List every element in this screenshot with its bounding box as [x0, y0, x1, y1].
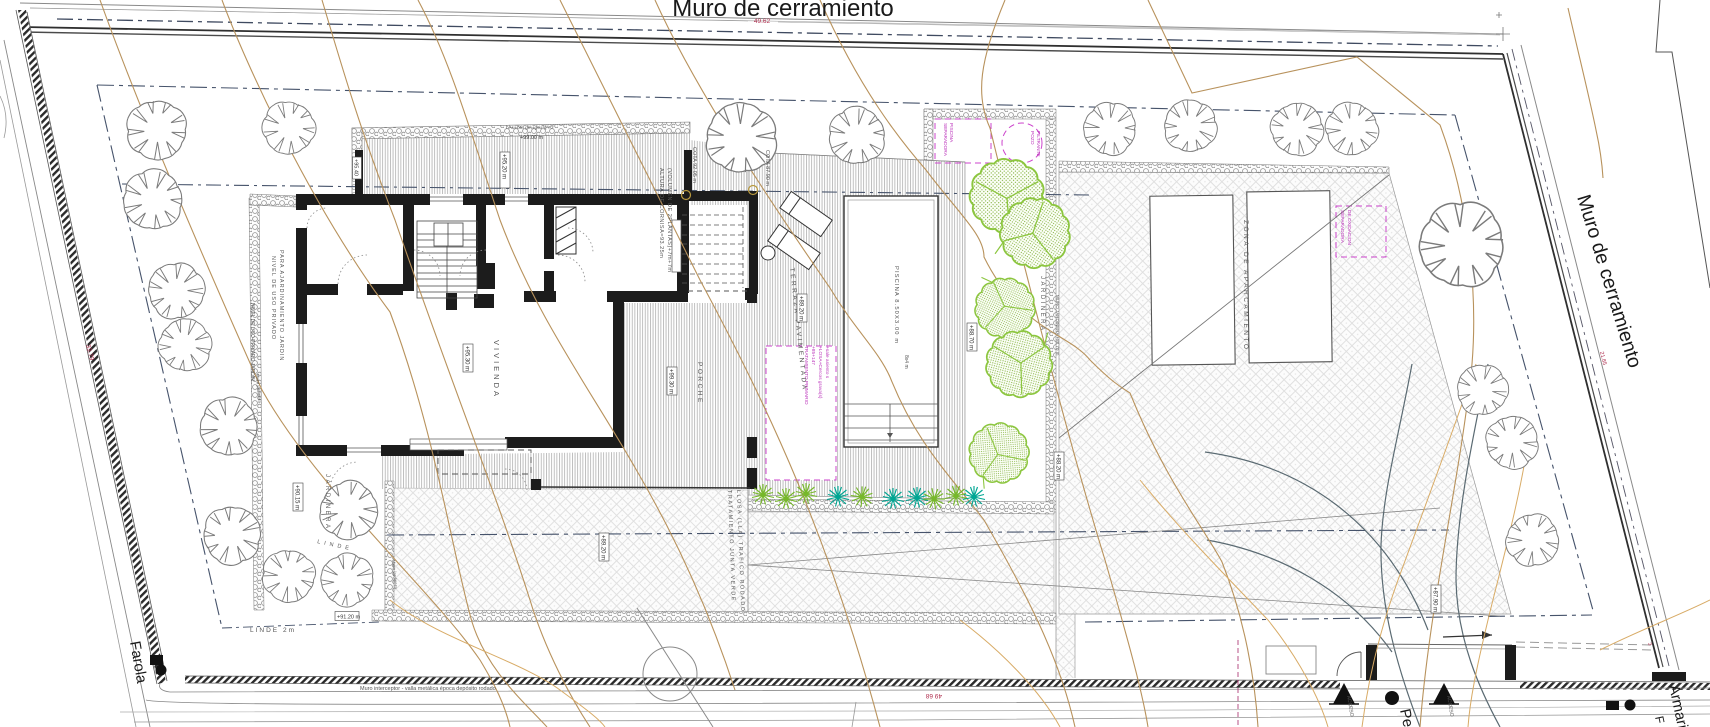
svg-text:NIVEL DE USO PRIVADO: NIVEL DE USO PRIVADO [270, 256, 276, 340]
svg-text:bAu±bM gm±gsu³q°#2: bAu±bM gm±gsu³q°#2 [506, 125, 554, 131]
svg-text:VIVIENDA: VIVIENDA [492, 340, 501, 399]
svg-text:Muro de cerramiento: Muro de cerramiento [672, 0, 893, 22]
svg-text:ZONA DE APARCAMIENTO: ZONA DE APARCAMIENTO [1242, 220, 1249, 351]
svg-text:+95.20 m: +95.20 m [501, 154, 507, 179]
svg-text:SEPARADORA: SEPARADORA [1339, 210, 1345, 244]
svg-text:+88.20 m: +88.20 m [1055, 454, 1061, 479]
svg-text:JARDINERA: JARDINERA [324, 474, 330, 531]
svg-text:49 68: 49 68 [925, 692, 942, 699]
svg-text:FILTRANTE: FILTRANTE [1035, 131, 1041, 157]
svg-text:ALTURA DE CORNISA=93.25m: ALTURA DE CORNISA=93.25m [658, 168, 664, 258]
svg-text:+99.30 m: +99.30 m [668, 369, 674, 394]
svg-text:PORCHE: PORCHE [696, 362, 703, 405]
svg-text:NIVEL DE USO PRIVADO JARDIN: NIVEL DE USO PRIVADO JARDIN [249, 303, 255, 381]
svg-text:+89.20 m: +89.20 m [798, 296, 804, 321]
svg-text:PARA AJARDINAMIENTO JARDIN: PARA AJARDINAMIENTO JARDIN [278, 250, 284, 361]
svg-text:49.62: 49.62 [754, 18, 771, 25]
svg-text:TRATAMIENTO PRIMARIO: TRATAMIENTO PRIMARIO [803, 346, 809, 405]
svg-text:Muro interceptor - valla metál: Muro interceptor - valla metálica época … [360, 686, 496, 692]
svg-text:JARDINERA: JARDINERA [1039, 276, 1045, 333]
svg-text:+87.90 m: +87.90 m [1432, 587, 1438, 612]
svg-text:PISCINA 8.50X3.00 m: PISCINA 8.50X3.00 m [893, 266, 899, 344]
svg-text:POZO: POZO [1029, 131, 1035, 145]
svg-text:LINDE 2m: LINDE 2m [250, 627, 296, 634]
svg-text:+88.70 m: +88.70 m [968, 325, 974, 350]
svg-text:+85+147: +85+147 [810, 346, 816, 365]
svg-text:MURO JARDINERA +88.70 m: MURO JARDINERA +88.70 m [1055, 295, 1060, 356]
svg-text:SEPARADORA: SEPARADORA [942, 123, 948, 157]
svg-text:+sale asiento s: +sale asiento s [824, 346, 830, 379]
svg-text:COTA 87.90 m: COTA 87.90 m [764, 150, 770, 186]
svg-text:+95.30 m: +95.30 m [464, 346, 470, 371]
svg-text:+91.20 m: +91.20 m [337, 615, 361, 621]
svg-text:COTA 92.05 m: COTA 92.05 m [691, 147, 697, 183]
svg-text:+99.00 m: +99.00 m [520, 135, 544, 141]
svg-text:DE OXIDACION: DE OXIDACION [1346, 210, 1352, 245]
svg-text:Pe: Pe [1396, 707, 1416, 727]
svg-text:+95.40: +95.40 [353, 159, 359, 176]
svg-text:(VOLUMEN DE 2PLANTAS)+7m+7m: (VOLUMEN DE 2PLANTAS)+7m+7m [666, 168, 672, 272]
svg-text:PISCINA: PISCINA [948, 123, 954, 143]
svg-text:+LOSA+Cercos grava(s): +LOSA+Cercos grava(s) [817, 346, 823, 399]
svg-text:8x4 m: 8x4 m [903, 355, 909, 369]
svg-text:+89.20 m: +89.20 m [600, 535, 606, 560]
svg-text:+90.15 m: +90.15 m [294, 485, 300, 510]
